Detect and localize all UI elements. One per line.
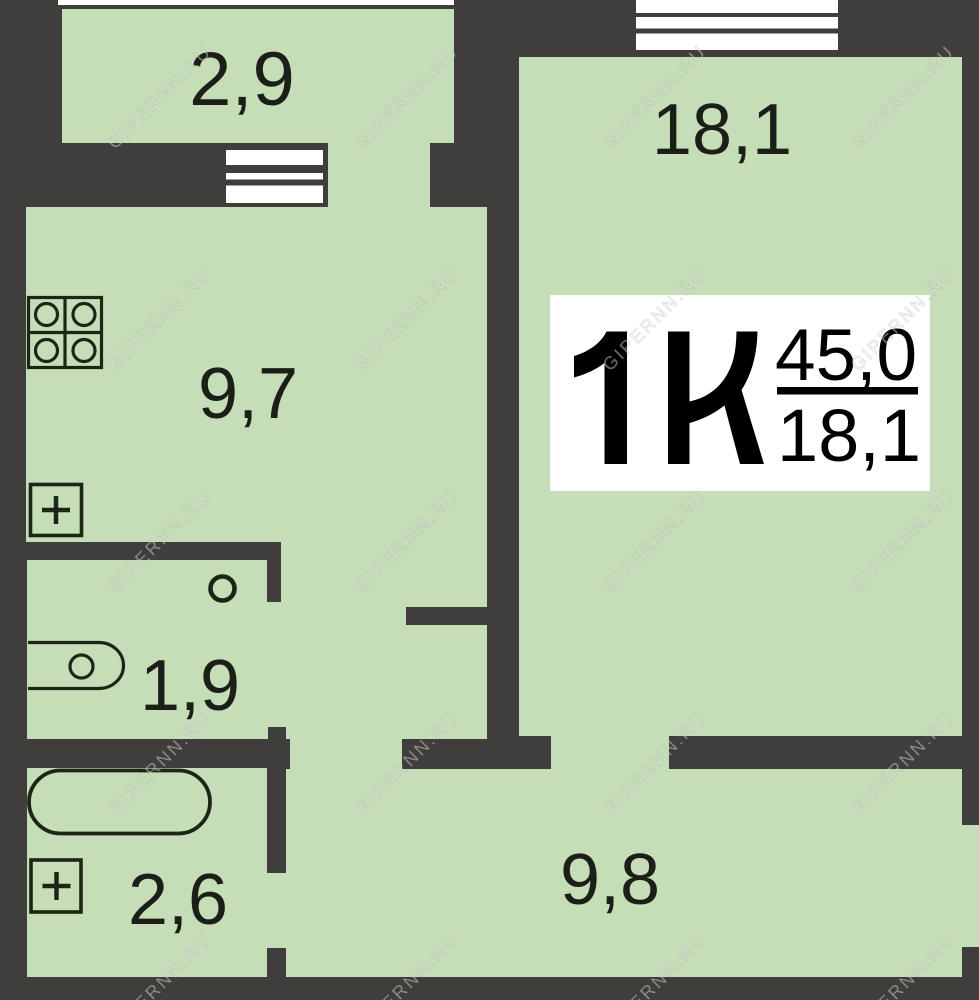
svg-text:18,1: 18,1 xyxy=(652,90,792,170)
svg-text:9,7: 9,7 xyxy=(198,354,298,434)
svg-text:2,6: 2,6 xyxy=(128,860,228,940)
svg-text:18,1: 18,1 xyxy=(777,394,921,477)
svg-text:1,9: 1,9 xyxy=(140,646,240,726)
svg-text:9,8: 9,8 xyxy=(560,840,660,920)
